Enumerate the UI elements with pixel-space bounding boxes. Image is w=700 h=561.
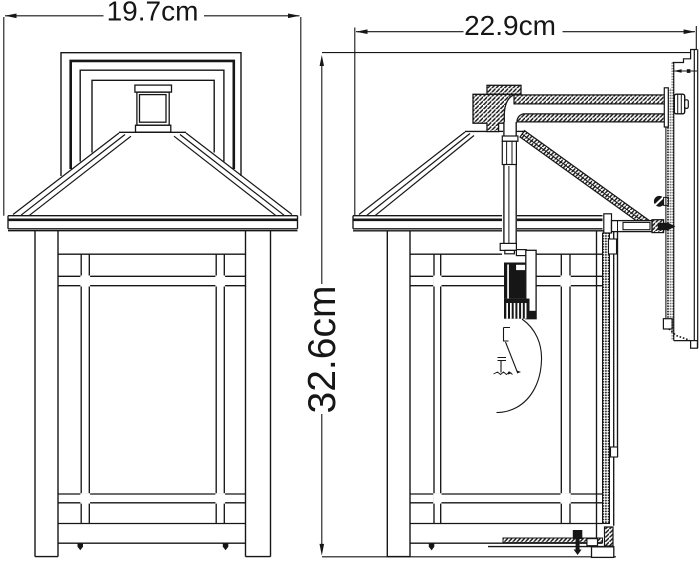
svg-text:22.9cm: 22.9cm — [464, 10, 556, 41]
svg-text:19.7cm: 19.7cm — [107, 0, 199, 27]
svg-text:32.6cm: 32.6cm — [301, 286, 344, 414]
